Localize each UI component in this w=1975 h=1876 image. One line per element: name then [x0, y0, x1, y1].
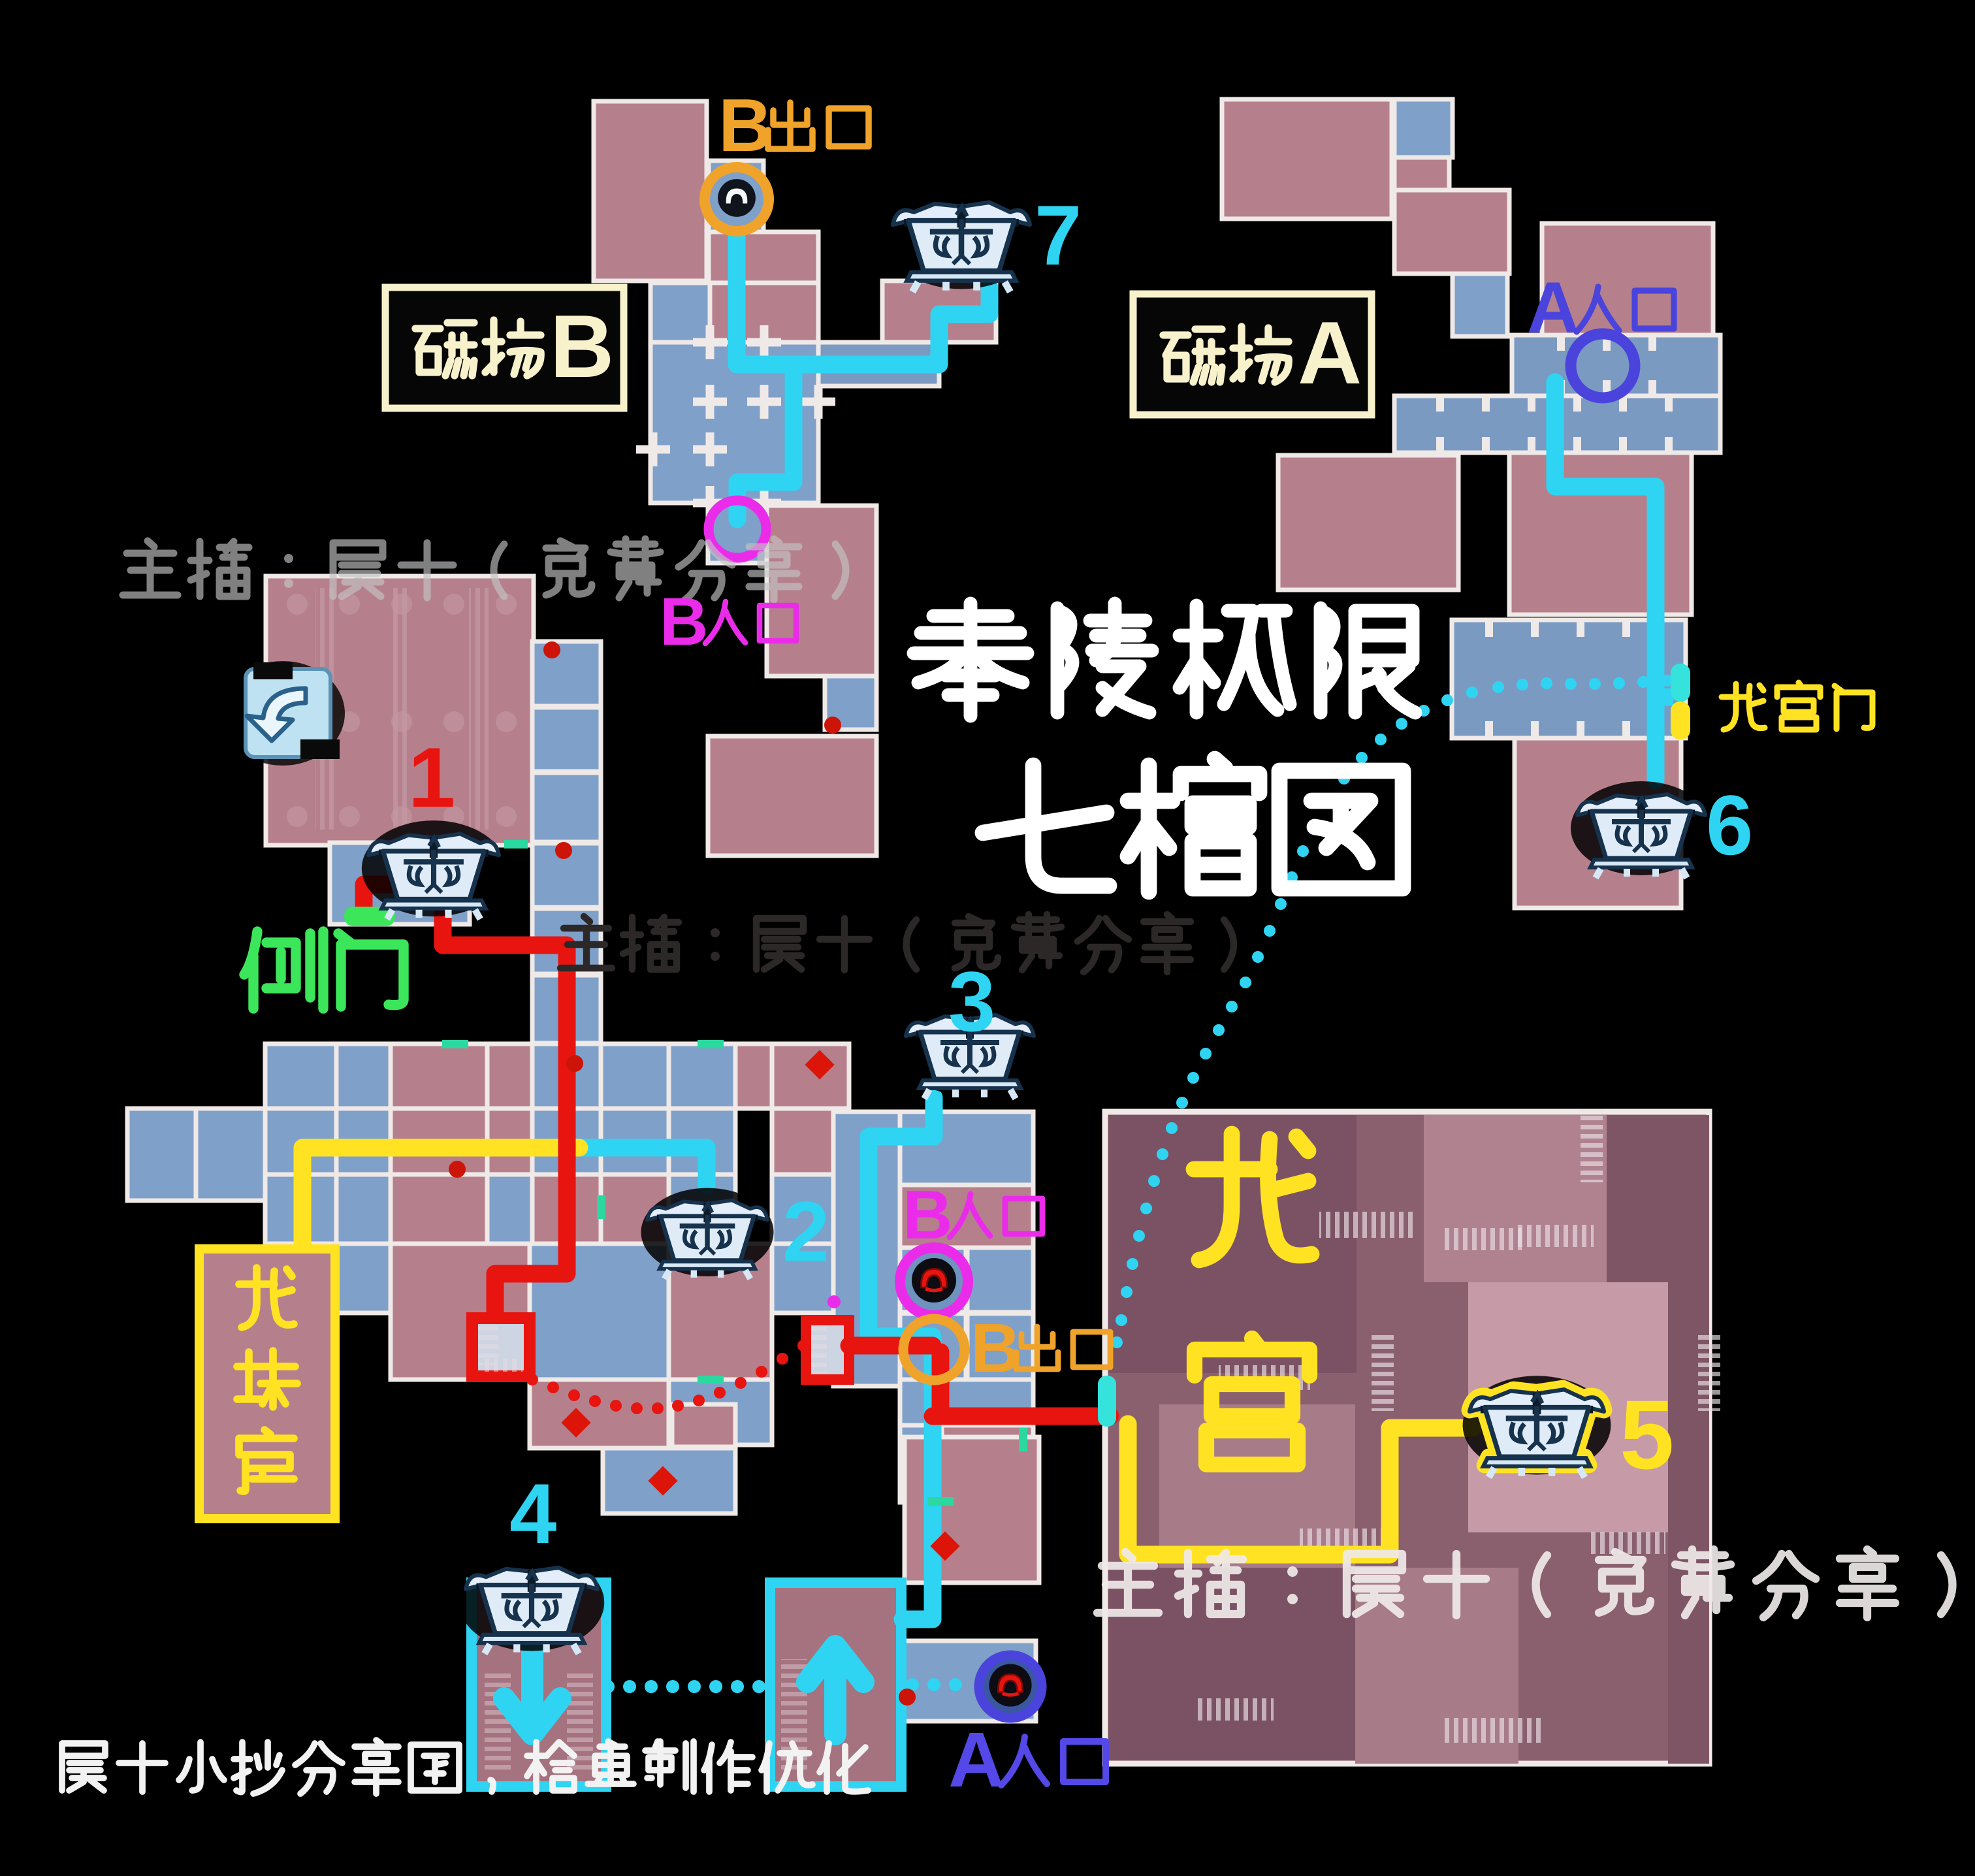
svg-text:2: 2: [782, 1184, 829, 1279]
svg-text:4: 4: [509, 1466, 556, 1561]
svg-text:A: A: [1527, 267, 1579, 348]
svg-text:3: 3: [948, 954, 995, 1049]
svg-text:7: 7: [1035, 187, 1082, 283]
svg-text:B: B: [971, 1310, 1021, 1387]
svg-text:5: 5: [1620, 1380, 1674, 1489]
svg-text:B: B: [903, 1176, 953, 1253]
svg-text:1: 1: [408, 730, 455, 825]
svg-text:A: A: [1298, 303, 1362, 402]
svg-text:B: B: [550, 297, 614, 396]
svg-text:B: B: [660, 584, 708, 659]
svg-text:B: B: [718, 84, 772, 167]
svg-text:A: A: [948, 1717, 1004, 1803]
svg-text:6: 6: [1706, 777, 1753, 873]
